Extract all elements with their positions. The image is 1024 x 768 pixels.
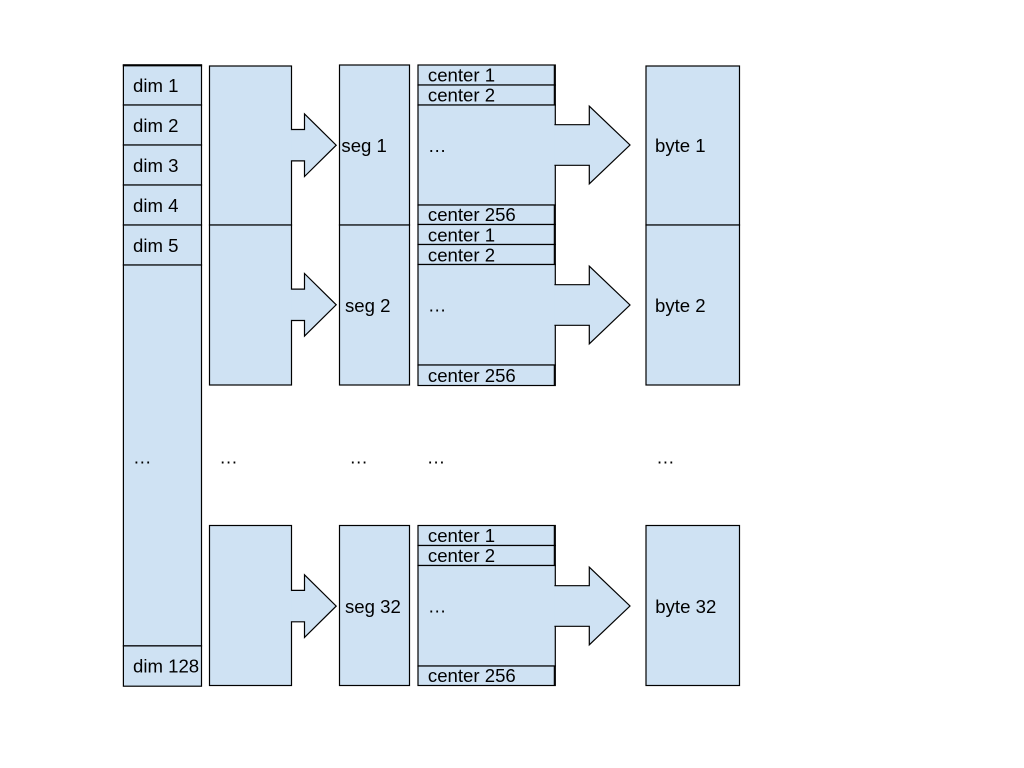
svg-text:byte 32: byte 32 bbox=[655, 596, 716, 617]
svg-text:dim 2: dim 2 bbox=[133, 115, 178, 136]
svg-text:dim 5: dim 5 bbox=[133, 235, 178, 256]
svg-text:center 256: center 256 bbox=[428, 665, 516, 686]
svg-text:byte 2: byte 2 bbox=[655, 295, 706, 316]
svg-text:dim 4: dim 4 bbox=[133, 195, 178, 216]
svg-text:center 2: center 2 bbox=[428, 84, 495, 105]
svg-text:…: … bbox=[656, 446, 675, 467]
svg-text:dim 3: dim 3 bbox=[133, 155, 178, 176]
svg-text:center 1: center 1 bbox=[428, 64, 495, 85]
svg-text:…: … bbox=[428, 135, 447, 156]
svg-text:center 2: center 2 bbox=[428, 244, 495, 265]
svg-text:byte 1: byte 1 bbox=[655, 135, 706, 156]
svg-text:…: … bbox=[219, 446, 238, 467]
svg-text:center 256: center 256 bbox=[428, 365, 516, 386]
svg-text:center 2: center 2 bbox=[428, 545, 495, 566]
svg-text:seg 2: seg 2 bbox=[345, 295, 391, 316]
svg-text:…: … bbox=[427, 446, 446, 467]
svg-text:…: … bbox=[428, 295, 447, 316]
svg-text:dim 128: dim 128 bbox=[133, 656, 199, 677]
svg-text:…: … bbox=[349, 446, 368, 467]
svg-text:center 256: center 256 bbox=[428, 204, 516, 225]
svg-text:center 1: center 1 bbox=[428, 224, 495, 245]
svg-text:center 1: center 1 bbox=[428, 525, 495, 546]
svg-text:seg 1: seg 1 bbox=[341, 135, 387, 156]
svg-text:…: … bbox=[133, 446, 152, 467]
svg-text:dim 1: dim 1 bbox=[133, 75, 178, 96]
svg-text:seg 32: seg 32 bbox=[345, 596, 401, 617]
svg-text:…: … bbox=[428, 596, 447, 617]
